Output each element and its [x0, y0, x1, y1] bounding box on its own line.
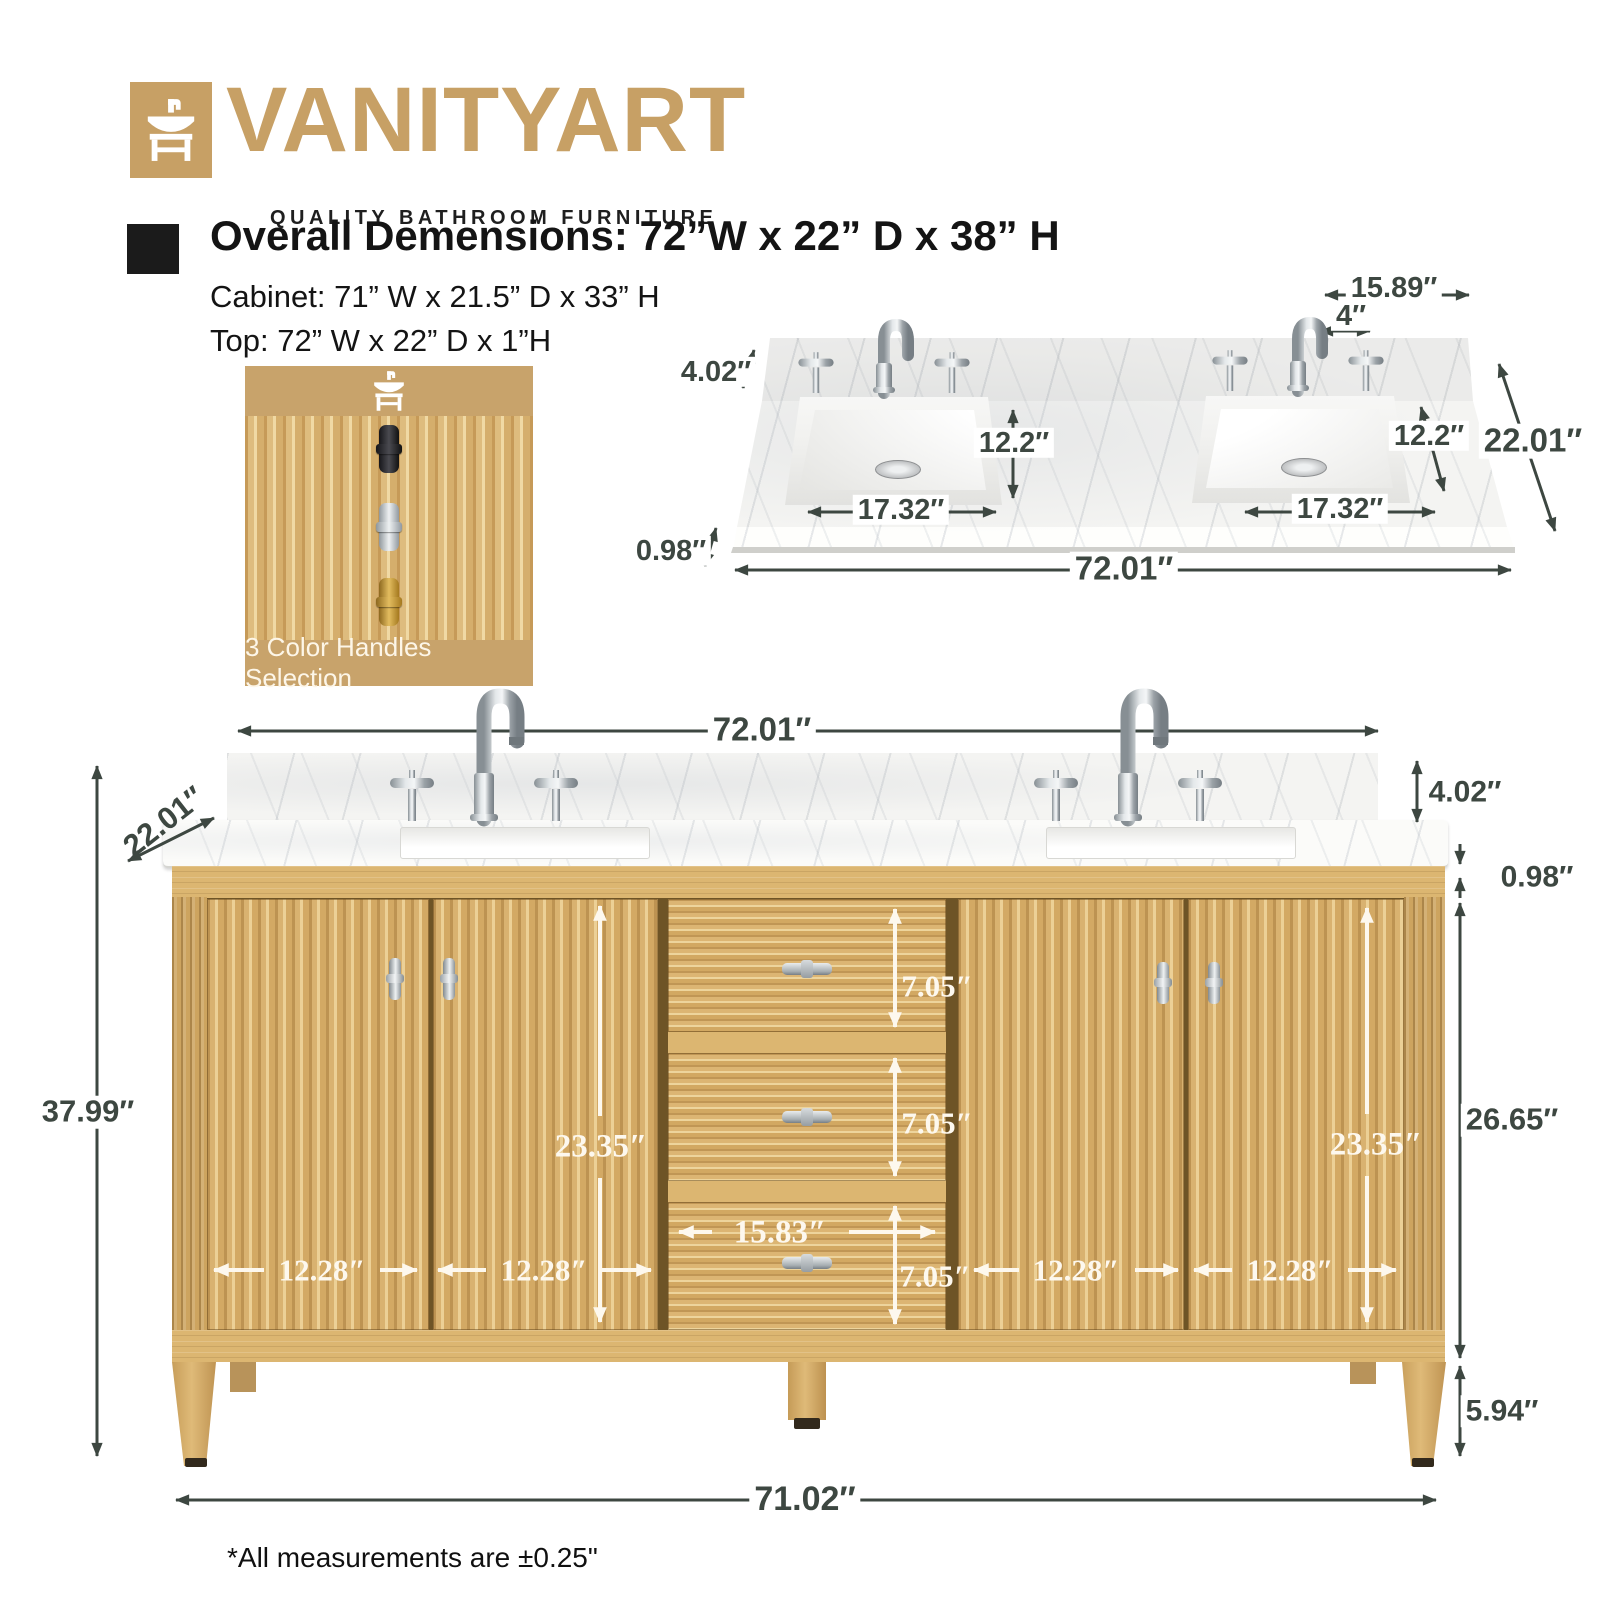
- measurement-tolerance-note: *All measurements are ±0.25": [227, 1542, 598, 1574]
- dim-faucet-hole-spacing: 4″: [1331, 301, 1371, 331]
- overall-dimensions-text: Overall Demensions: 72”W x 22” D x 38” H: [210, 212, 1060, 260]
- dim-ct-width: 72.01″: [1070, 552, 1178, 587]
- cabinet-dimensions-text: Cabinet: 71” W x 21.5” D x 33” H: [210, 279, 660, 315]
- drawer-3-pull-handle: [782, 1257, 832, 1269]
- door-1-pull-handle: [389, 958, 401, 1000]
- vanity-backsplash: [227, 753, 1378, 822]
- swatch-caption-band: 3 Color Handles Selection: [245, 640, 533, 686]
- swatch-header-band: [245, 366, 533, 416]
- gold-handle-option: [379, 578, 399, 626]
- dim-drawer-1-height: 7.05″: [901, 971, 972, 1004]
- cabinet-bottom-rail: [172, 1330, 1445, 1362]
- dim-door-height-right: 23.35″: [1330, 1128, 1422, 1163]
- left-sink-drain: [875, 460, 921, 479]
- dim-ct-depth: 22.01″: [1479, 424, 1587, 459]
- right-sink-drain: [1281, 458, 1327, 477]
- door-3-pull-handle: [1157, 962, 1169, 1004]
- dim-backsplash-return-width: 15.89″: [1346, 273, 1442, 303]
- vanity-sink-icon: [367, 370, 411, 412]
- dim-ct-backsplash-height: 4.02″: [676, 357, 756, 387]
- top-dimensions-text: Top: 72” W x 22” D x 1”H: [210, 323, 551, 359]
- dim-leg-height: 5.94″: [1461, 1395, 1544, 1427]
- front-right-leg: [1398, 1362, 1448, 1466]
- handle-color-swatch: 3 Color Handles Selection: [245, 366, 533, 686]
- dim-door-4-width: 12.28″: [1247, 1255, 1334, 1288]
- dim-cabinet-height: 26.65″: [1461, 1104, 1563, 1137]
- bullet-square: [127, 224, 179, 274]
- dim-top-thickness: 0.98″: [1496, 861, 1579, 893]
- door-2-pull-handle: [443, 958, 455, 1000]
- drawer-2-pull-handle: [782, 1111, 832, 1123]
- left-sink-cutout: [400, 827, 650, 859]
- rear-leg-stub: [230, 1362, 256, 1392]
- dim-backsplash-height: 4.02″: [1424, 776, 1507, 808]
- brand-logo-icon: [130, 82, 212, 178]
- cabinet-left-stile: [172, 897, 207, 1331]
- swatch-caption: 3 Color Handles Selection: [245, 632, 533, 694]
- dim-sink-width-left: 17.32″: [853, 495, 949, 525]
- dim-sink-depth-right: 12.2″: [1389, 421, 1469, 451]
- dim-drawer-3-height: 7.05″: [899, 1261, 970, 1294]
- center-leg: [788, 1362, 826, 1420]
- cabinet-top-rail: [172, 866, 1445, 898]
- chrome-handle-option: [379, 503, 399, 551]
- leg-foot: [794, 1418, 820, 1429]
- leg-foot: [1412, 1458, 1434, 1467]
- dim-sink-depth-left: 12.2″: [974, 428, 1054, 458]
- dim-door-1-width: 12.28″: [279, 1255, 366, 1288]
- drawer-1-pull-handle: [782, 963, 832, 975]
- cabinet-right-stile: [1404, 897, 1445, 1331]
- black-handle-option: [379, 425, 399, 473]
- dim-door-2-width: 12.28″: [501, 1255, 588, 1288]
- product-dimension-sheet: VANITYART QUALITY BATHROOM FURNITURE Ove…: [0, 0, 1600, 1600]
- front-left-leg: [170, 1362, 218, 1466]
- dim-door-3-width: 12.28″: [1033, 1255, 1120, 1288]
- dim-overall-height: 37.99″: [37, 1096, 139, 1129]
- vanity-sink-icon: [142, 97, 200, 163]
- leg-foot: [185, 1458, 207, 1467]
- dim-ct-thickness: 0.98″: [631, 536, 711, 566]
- dim-drawer-width: 15.83″: [734, 1216, 826, 1251]
- dim-sink-width-right: 17.32″: [1292, 494, 1388, 524]
- brand-name: VANITYART: [226, 74, 746, 166]
- right-sink-cutout: [1046, 827, 1296, 859]
- rear-leg-stub: [1350, 1362, 1376, 1384]
- dim-base-width: 71.02″: [749, 1482, 860, 1518]
- dim-door-height-left: 23.35″: [555, 1130, 647, 1165]
- dim-drawer-2-height: 7.05″: [901, 1108, 972, 1141]
- door-4-pull-handle: [1208, 962, 1220, 1004]
- drawer-rail: [668, 1181, 946, 1202]
- dim-top-width: 72.01″: [708, 713, 816, 748]
- drawer-rail: [668, 1032, 946, 1053]
